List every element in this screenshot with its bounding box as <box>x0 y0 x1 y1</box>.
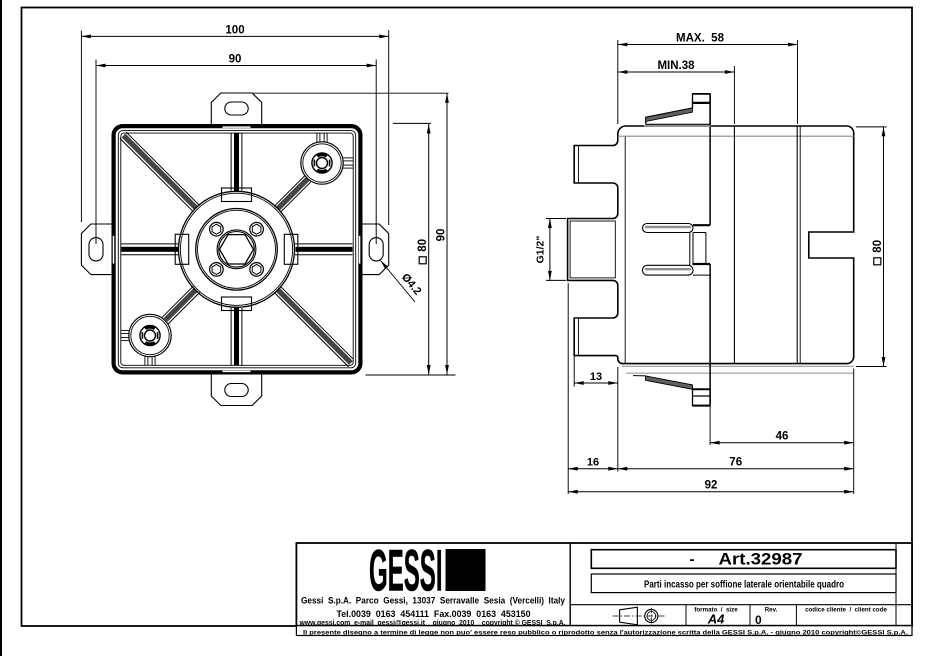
svg-text:MAX. 58: MAX. 58 <box>676 32 725 44</box>
svg-text:76: 76 <box>729 457 742 469</box>
svg-text:codice cliente / client code: codice cliente / client code <box>805 607 887 614</box>
svg-text:GESSI: GESSI <box>369 539 443 604</box>
svg-text:80: 80 <box>417 239 429 252</box>
svg-text:Gessi S.p.A. Parco Gessi,: Gessi S.p.A. Parco Gessi, 13037 Serraval… <box>301 596 566 606</box>
svg-text:G1/2": G1/2" <box>535 236 547 264</box>
svg-text:16: 16 <box>587 457 599 469</box>
svg-text:Rev.: Rev. <box>765 607 778 614</box>
svg-text:Il presente disegno a termine: Il presente disegno a termine di legge n… <box>303 628 908 636</box>
svg-text:80: 80 <box>872 240 884 253</box>
svg-text:100: 100 <box>225 24 244 36</box>
svg-text:90: 90 <box>435 229 447 242</box>
svg-text:Parti incasso per soffione lat: Parti incasso per soffione laterale orie… <box>644 579 844 590</box>
svg-text:92: 92 <box>705 480 718 492</box>
svg-text:0: 0 <box>755 613 762 627</box>
svg-text:-: - <box>690 551 695 568</box>
svg-text:MIN.38: MIN.38 <box>657 60 695 72</box>
svg-text:A4: A4 <box>707 612 725 627</box>
svg-text:13: 13 <box>590 371 602 383</box>
svg-text:90: 90 <box>229 53 242 65</box>
svg-text:Art.32987: Art.32987 <box>719 550 803 569</box>
svg-text:46: 46 <box>776 431 789 443</box>
